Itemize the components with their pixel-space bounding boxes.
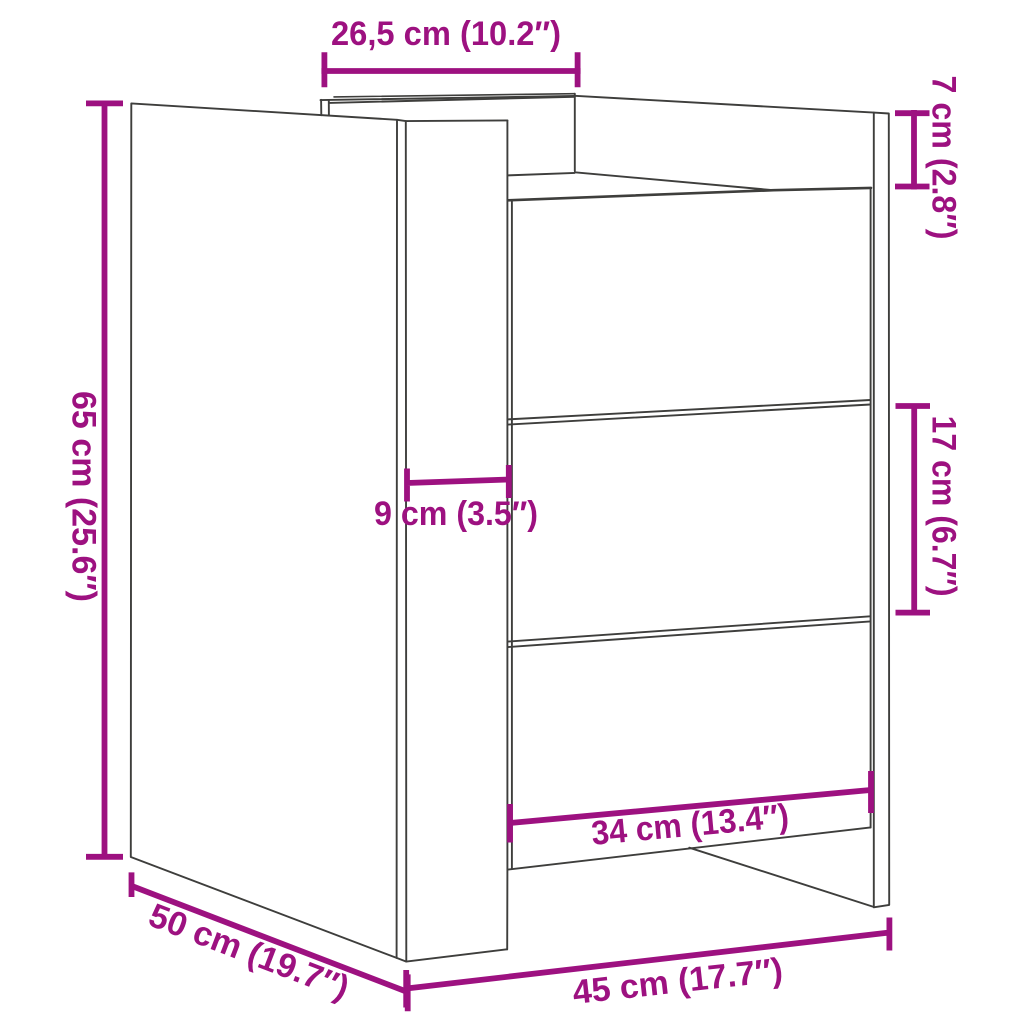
svg-text:65 cm (25.6″): 65 cm (25.6″) [65,391,103,602]
svg-text:9 cm (3.5″): 9 cm (3.5″) [374,495,538,533]
svg-text:7 cm (2.8″): 7 cm (2.8″) [925,76,963,240]
svg-text:50 cm (19.7″): 50 cm (19.7″) [144,896,355,1007]
svg-text:45 cm (17.7″): 45 cm (17.7″) [571,951,785,1012]
svg-text:26,5 cm (10.2″): 26,5 cm (10.2″) [331,15,561,53]
svg-text:17 cm (6.7″): 17 cm (6.7″) [925,416,963,597]
svg-text:34 cm (13.4″): 34 cm (13.4″) [590,797,791,853]
